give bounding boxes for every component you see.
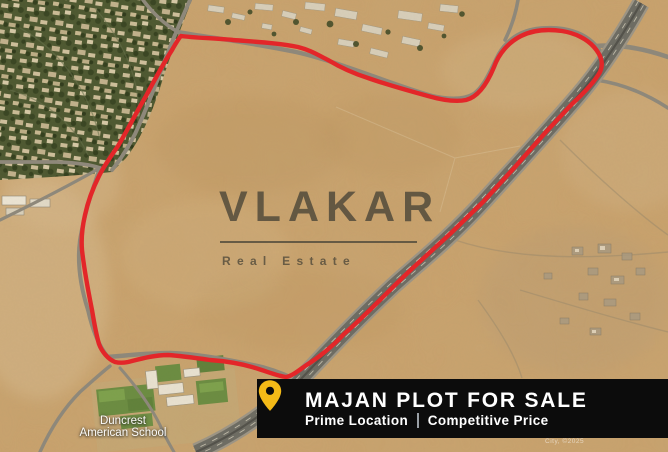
school-label-line2: American School <box>46 428 200 440</box>
watermark-brand: VLAKAR <box>219 186 440 229</box>
sale-banner: MAJAN PLOT FOR SALE Prime Location Compe… <box>257 379 668 438</box>
school-label-line1: Duncrest <box>46 416 200 428</box>
plot-advert-image: Duncrest American School VLAKAR Real Est… <box>0 0 668 452</box>
banner-text-block: MAJAN PLOT FOR SALE Prime Location Compe… <box>305 389 588 429</box>
banner-subtitle-right: Competitive Price <box>428 413 549 429</box>
banner-subtitle-left: Prime Location <box>305 413 408 429</box>
watermark-rule <box>220 241 417 243</box>
map-attribution: City, ©2025 <box>545 438 584 445</box>
banner-title: MAJAN PLOT FOR SALE <box>305 389 588 412</box>
location-pin-icon <box>257 379 283 412</box>
banner-subtitle-divider <box>417 413 419 428</box>
banner-subtitle: Prime Location Competitive Price <box>305 413 588 429</box>
map-label-school: Duncrest American School <box>46 416 200 439</box>
watermark-tagline: Real Estate <box>222 254 356 268</box>
